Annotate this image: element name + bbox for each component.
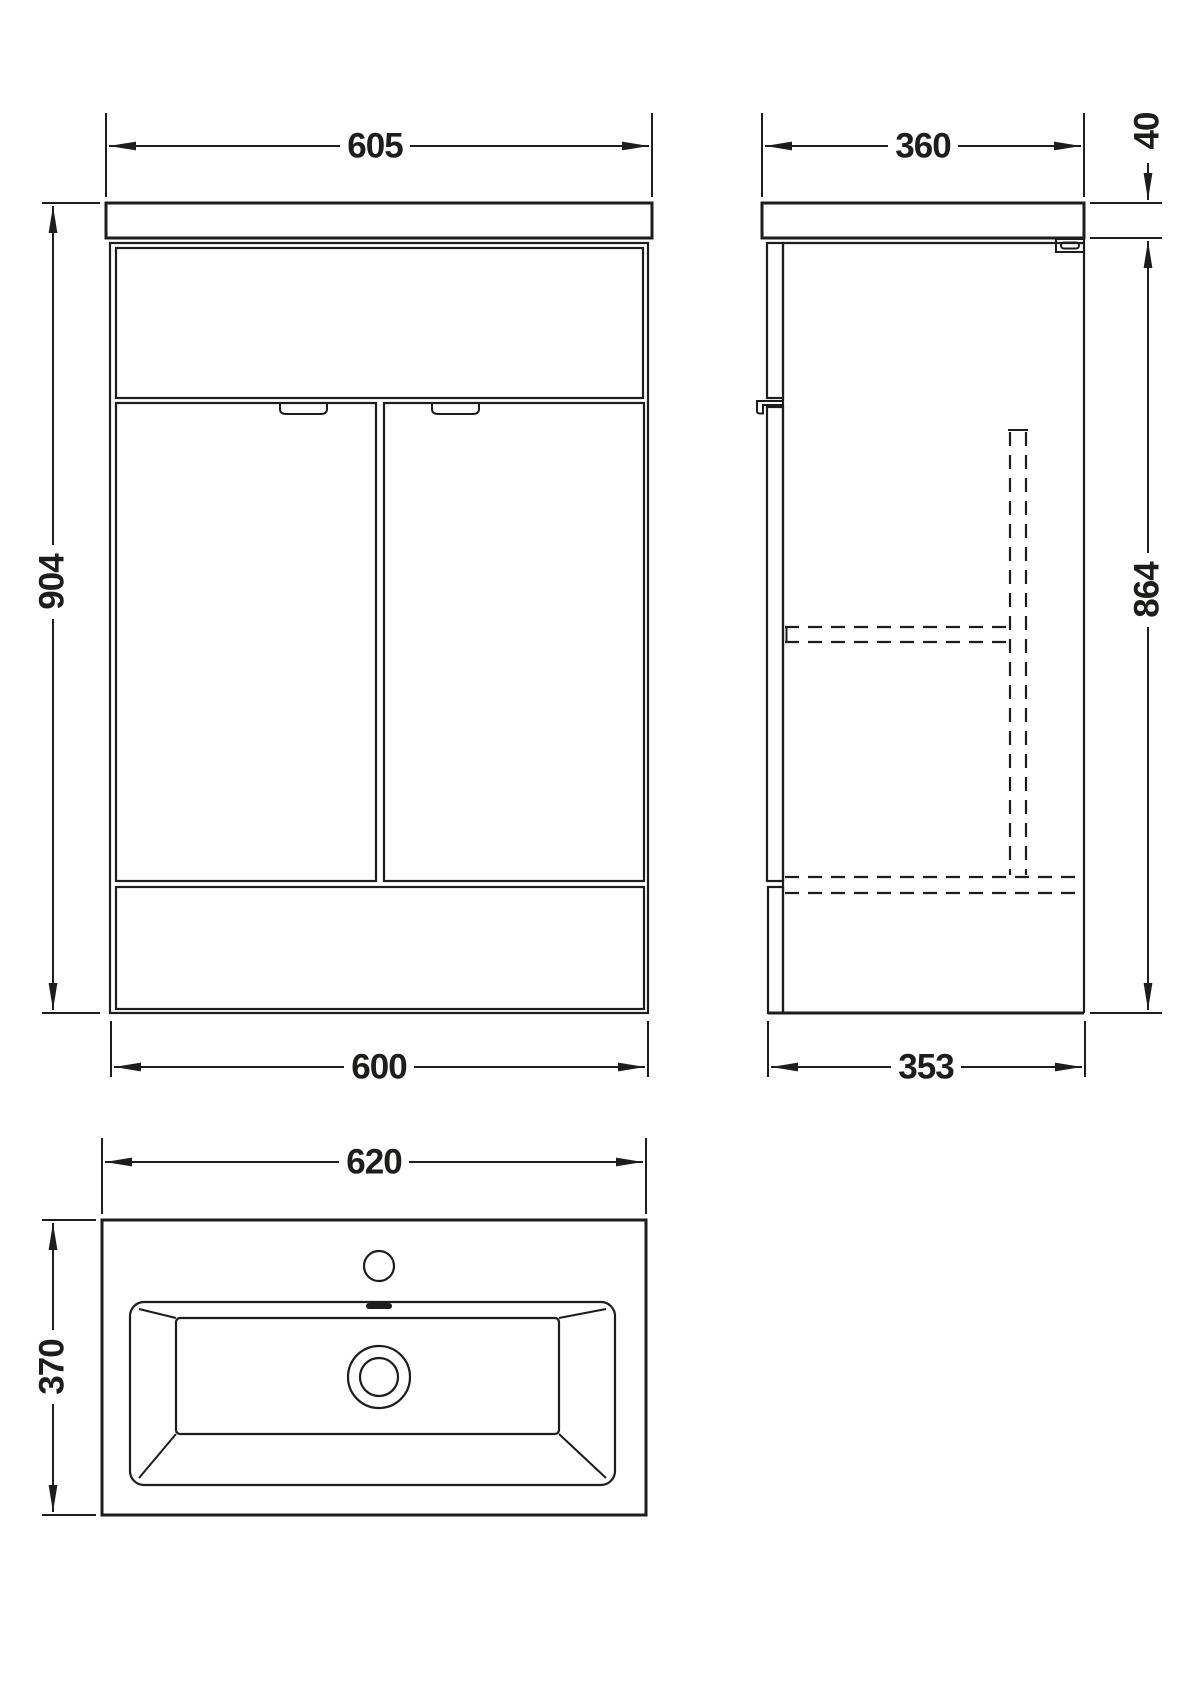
- bowl-corner-top-left: [139, 1309, 176, 1318]
- dimension-cabinet-depth: 353: [768, 1021, 1085, 1087]
- door-left: [116, 403, 376, 881]
- internal-shelf-hidden: [785, 627, 1010, 642]
- dimension-cabinet-width: 600: [111, 1021, 648, 1087]
- dimension-counter-depth: 360: [762, 113, 1084, 197]
- dimension-cabinet-height: 864: [1090, 241, 1167, 1013]
- back-fixing-slot: [1061, 243, 1079, 249]
- overflow-slot: [366, 1303, 392, 1309]
- dim-label-605: 605: [347, 127, 403, 166]
- waste-drain-inner: [360, 1358, 398, 1396]
- dimension-basin-depth: 370: [33, 1220, 97, 1515]
- dimension-basin-width: 620: [102, 1138, 646, 1214]
- bowl-corner-bottom-left: [139, 1434, 176, 1478]
- dim-label-620: 620: [346, 1143, 402, 1182]
- cabinet-carcass-front: [110, 243, 648, 1013]
- tap-hole: [364, 1251, 394, 1281]
- front-elevation-view: [106, 203, 652, 1013]
- vanity-unit-dimension-drawing: 605 904 600 360 40 864: [0, 0, 1200, 1698]
- basin-bowl-rim: [130, 1302, 615, 1485]
- basin-bowl-bottom: [176, 1318, 559, 1434]
- side-elevation-view: [757, 203, 1084, 1013]
- dimension-counter-thickness: 40: [1090, 112, 1167, 238]
- dimension-counter-width: 605: [106, 113, 652, 197]
- door-left-handle-notch: [280, 404, 327, 414]
- basin-outer-edge: [102, 1220, 646, 1515]
- upper-false-front-panel: [116, 248, 643, 398]
- countertop-front: [106, 203, 652, 238]
- door-side-profile: [767, 407, 783, 881]
- bowl-corner-top-right: [559, 1309, 606, 1318]
- back-service-panel-hidden: [1008, 430, 1028, 875]
- cabinet-base-panel-hidden: [785, 877, 1084, 893]
- dim-label-40: 40: [1128, 112, 1167, 149]
- plinth-side-profile: [768, 887, 783, 1013]
- dim-label-360: 360: [895, 127, 951, 166]
- dim-label-353: 353: [898, 1048, 954, 1087]
- plinth-panel: [116, 887, 644, 1009]
- dim-label-864: 864: [1128, 561, 1167, 618]
- upper-panel-side-profile: [767, 243, 783, 398]
- bowl-corner-bottom-right: [559, 1434, 606, 1478]
- technical-drawing-sheet: 605 904 600 360 40 864: [0, 0, 1200, 1698]
- waste-drain-outer: [348, 1346, 410, 1408]
- countertop-side: [762, 203, 1084, 238]
- dimension-overall-height: 904: [33, 203, 101, 1013]
- door-right-handle-notch: [432, 404, 479, 414]
- dim-label-370: 370: [33, 1339, 72, 1395]
- dim-label-904: 904: [33, 553, 72, 610]
- door-right: [384, 403, 644, 881]
- dim-label-600: 600: [351, 1048, 407, 1087]
- basin-plan-view: [102, 1220, 646, 1515]
